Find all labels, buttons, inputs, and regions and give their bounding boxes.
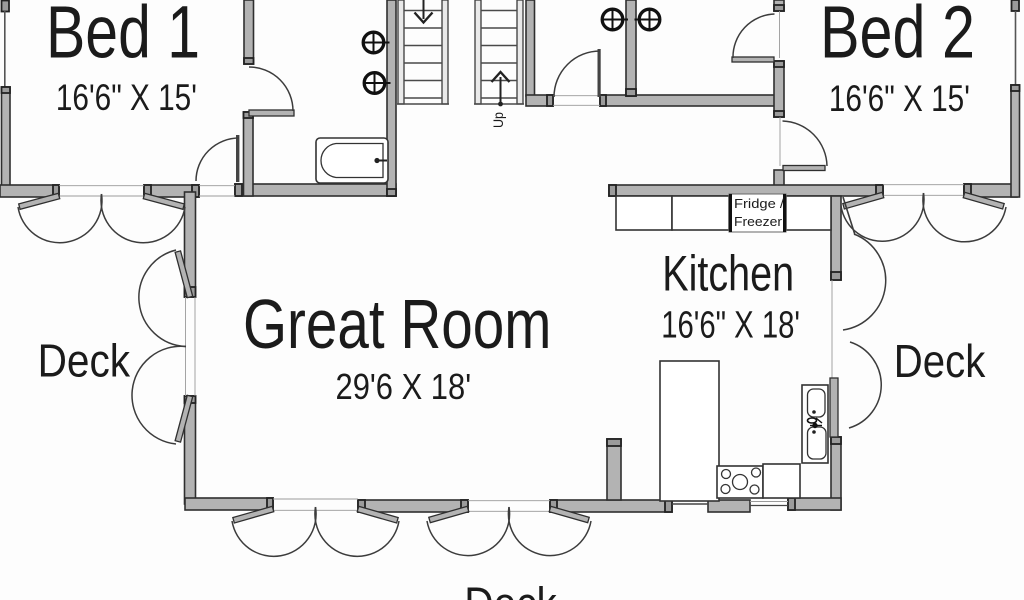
svg-text:Deck: Deck (38, 334, 131, 386)
svg-text:Fridge /: Fridge / (734, 196, 785, 211)
svg-text:16'6" X 15': 16'6" X 15' (56, 77, 197, 118)
svg-text:Up: Up (491, 112, 506, 128)
svg-text:Bed 2: Bed 2 (820, 0, 975, 74)
svg-text:Deck: Deck (464, 578, 557, 600)
svg-text:Kitchen: Kitchen (662, 246, 794, 302)
svg-text:Bed 1: Bed 1 (46, 0, 200, 74)
svg-text:Deck: Deck (894, 335, 986, 387)
svg-text:Freezer: Freezer (734, 214, 783, 229)
svg-text:29'6 X 18': 29'6 X 18' (336, 366, 472, 407)
svg-text:16'6" X 15': 16'6" X 15' (829, 78, 970, 119)
svg-text:16'6" X 18': 16'6" X 18' (661, 304, 800, 346)
svg-text:Great Room: Great Room (243, 285, 552, 363)
